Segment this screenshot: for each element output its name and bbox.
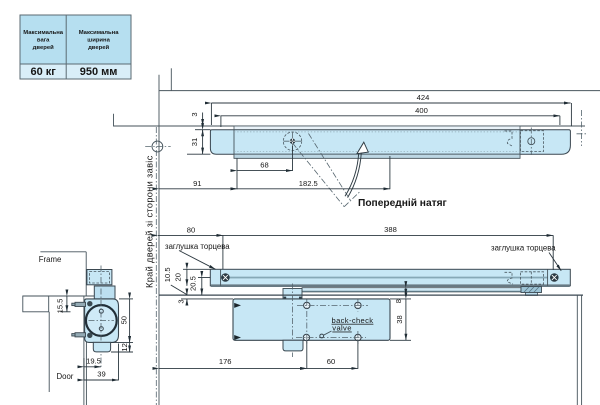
svg-text:50: 50	[119, 316, 128, 324]
svg-text:39: 39	[97, 370, 105, 379]
svg-text:400: 400	[415, 106, 428, 115]
svg-text:Frame: Frame	[39, 255, 62, 264]
svg-text:3: 3	[176, 299, 185, 303]
svg-text:60 кг: 60 кг	[31, 66, 57, 78]
svg-text:60: 60	[327, 357, 335, 366]
svg-text:80: 80	[187, 225, 195, 234]
svg-text:38: 38	[395, 315, 404, 323]
svg-text:3: 3	[190, 112, 199, 116]
svg-text:20.5: 20.5	[189, 276, 198, 291]
svg-text:Попередній натяг: Попередній натяг	[358, 198, 447, 209]
svg-text:15.5: 15.5	[56, 299, 65, 314]
svg-text:дверей: дверей	[88, 44, 109, 51]
svg-text:91: 91	[193, 179, 201, 188]
svg-text:Край дверей зі сторони завіс: Край дверей зі сторони завіс	[144, 155, 154, 288]
svg-text:68: 68	[260, 161, 268, 170]
svg-text:ширина: ширина	[87, 38, 110, 44]
svg-text:дверей: дверей	[33, 44, 54, 51]
svg-text:20: 20	[174, 273, 183, 281]
svg-text:Door: Door	[57, 372, 74, 381]
svg-text:вага: вага	[37, 38, 50, 44]
svg-text:182.5: 182.5	[299, 179, 318, 188]
svg-text:Максимальна: Максимальна	[79, 30, 119, 36]
svg-text:31: 31	[190, 138, 199, 146]
svg-text:424: 424	[417, 93, 430, 102]
svg-text:заглушка торцева: заглушка торцева	[165, 242, 230, 251]
svg-text:valve: valve	[332, 324, 351, 333]
svg-text:950 мм: 950 мм	[80, 66, 118, 78]
svg-text:заглушка торцева: заглушка торцева	[491, 244, 556, 253]
svg-text:Максимальна: Максимальна	[23, 30, 63, 36]
svg-text:10.5: 10.5	[163, 267, 172, 282]
svg-text:176: 176	[219, 357, 232, 366]
svg-text:388: 388	[384, 225, 397, 234]
svg-text:12: 12	[120, 343, 129, 351]
svg-text:8: 8	[394, 299, 403, 303]
svg-text:19.5: 19.5	[86, 356, 101, 365]
